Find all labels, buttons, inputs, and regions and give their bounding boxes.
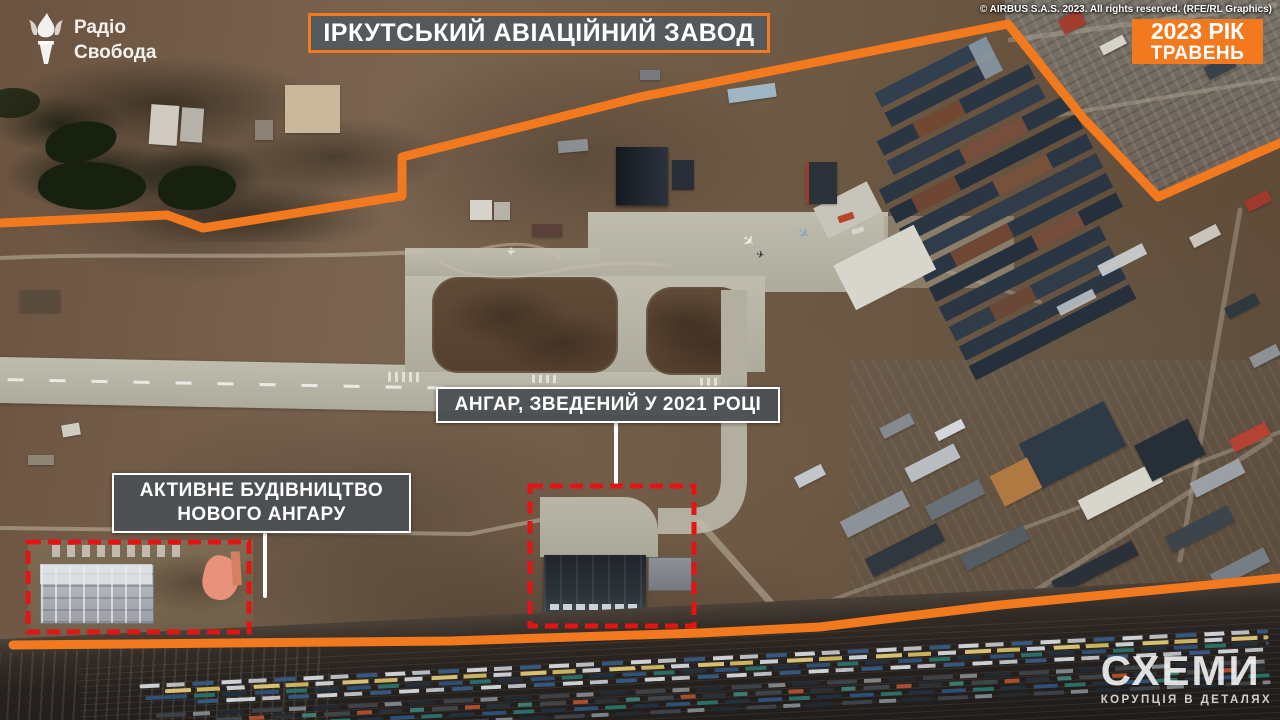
logo-line1: Радіо	[74, 16, 156, 41]
hangar-callout-text: АНГАР, ЗВЕДЕНИЙ У 2021 РОЦІ	[455, 393, 762, 417]
grass-island	[432, 277, 618, 373]
building	[640, 70, 660, 80]
hangar-callout: АНГАР, ЗВЕДЕНИЙ У 2021 РОЦІ	[436, 387, 780, 423]
runway-marking	[532, 375, 556, 383]
flight-test-hangar	[616, 147, 668, 205]
construction-callout-line2: НОВОГО АНГАРУ	[177, 503, 346, 527]
badge-month: ТРАВЕНЬ	[1151, 44, 1245, 63]
construction-materials-row	[52, 545, 182, 557]
hangar-apron	[540, 497, 658, 557]
runway-marking	[700, 378, 726, 386]
building	[180, 107, 204, 142]
helicopter-icon: ✈	[755, 250, 765, 261]
grass-island	[646, 287, 746, 375]
title-banner: ІРКУТСЬКИЙ АВІАЦІЙНИЙ ЗАВОД	[308, 13, 770, 53]
building	[672, 160, 694, 190]
building	[285, 85, 340, 133]
page-title: ІРКУТСЬКИЙ АВІАЦІЙНИЙ ЗАВОД	[323, 19, 754, 48]
building	[470, 200, 492, 220]
image-credit: © AIRBUS S.A.S. 2023. All rights reserve…	[980, 4, 1272, 15]
hangar-2021-building	[544, 555, 646, 613]
building	[532, 224, 562, 237]
torch-icon	[26, 12, 66, 70]
construction-callout: АКТИВНЕ БУДІВНИЦТВО НОВОГО АНГАРУ	[112, 473, 411, 533]
satellite-graphic: ✈ ✈ ✈ ✈ Радіо Свобода	[0, 0, 1280, 720]
schemes-watermark: СХЕМИ КОРУПЦІЯ В ДЕТАЛЯХ	[1101, 650, 1272, 706]
watermark-title: СХЕМИ	[1101, 650, 1272, 692]
hangar-annex	[648, 557, 692, 591]
date-badge: 2023 РІК ТРАВЕНЬ	[1132, 19, 1263, 64]
apron-edge	[884, 216, 1014, 288]
construction-callout-line1: АКТИВНЕ БУДІВНИЦТВО	[140, 479, 383, 503]
radio-svoboda-logo: Радіо Свобода	[26, 12, 156, 70]
taxiway	[405, 248, 600, 278]
building	[149, 104, 180, 146]
watermark-subtitle: КОРУПЦІЯ В ДЕТАЛЯХ	[1101, 694, 1272, 706]
building	[494, 202, 510, 220]
red-edge-building	[806, 162, 837, 204]
logo-line2: Свобода	[74, 41, 156, 66]
building	[20, 290, 60, 312]
building	[28, 455, 54, 465]
building	[255, 120, 273, 140]
aircraft-icon: ✈	[504, 247, 515, 256]
runway-marking	[388, 372, 422, 383]
new-hangar-roof	[40, 564, 152, 584]
badge-year: 2023 РІК	[1151, 20, 1244, 43]
